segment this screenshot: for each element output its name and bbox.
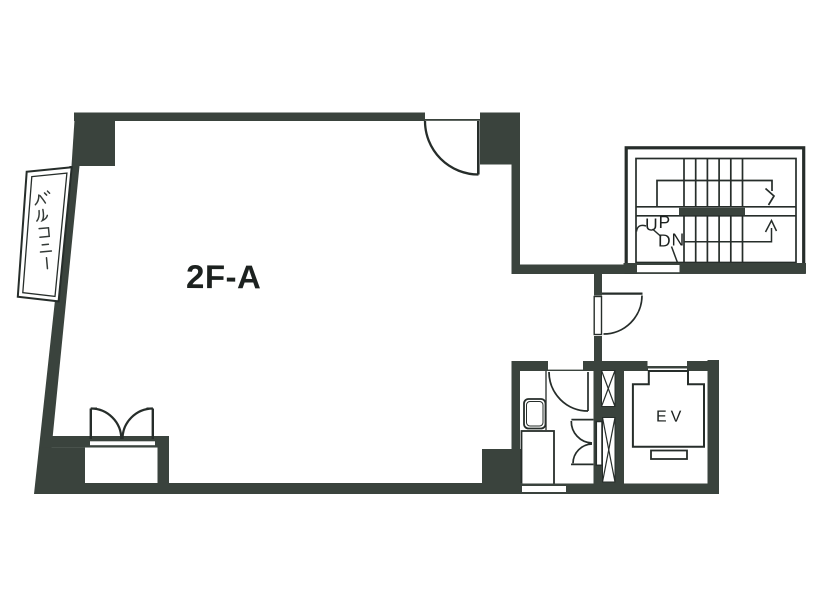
svg-text:N: N	[671, 230, 684, 250]
svg-text:D: D	[658, 231, 671, 251]
svg-text:EV: EV	[656, 409, 685, 426]
svg-text:P: P	[658, 212, 670, 232]
svg-text:2F-A: 2F-A	[186, 258, 262, 295]
svg-text:U: U	[645, 215, 658, 235]
